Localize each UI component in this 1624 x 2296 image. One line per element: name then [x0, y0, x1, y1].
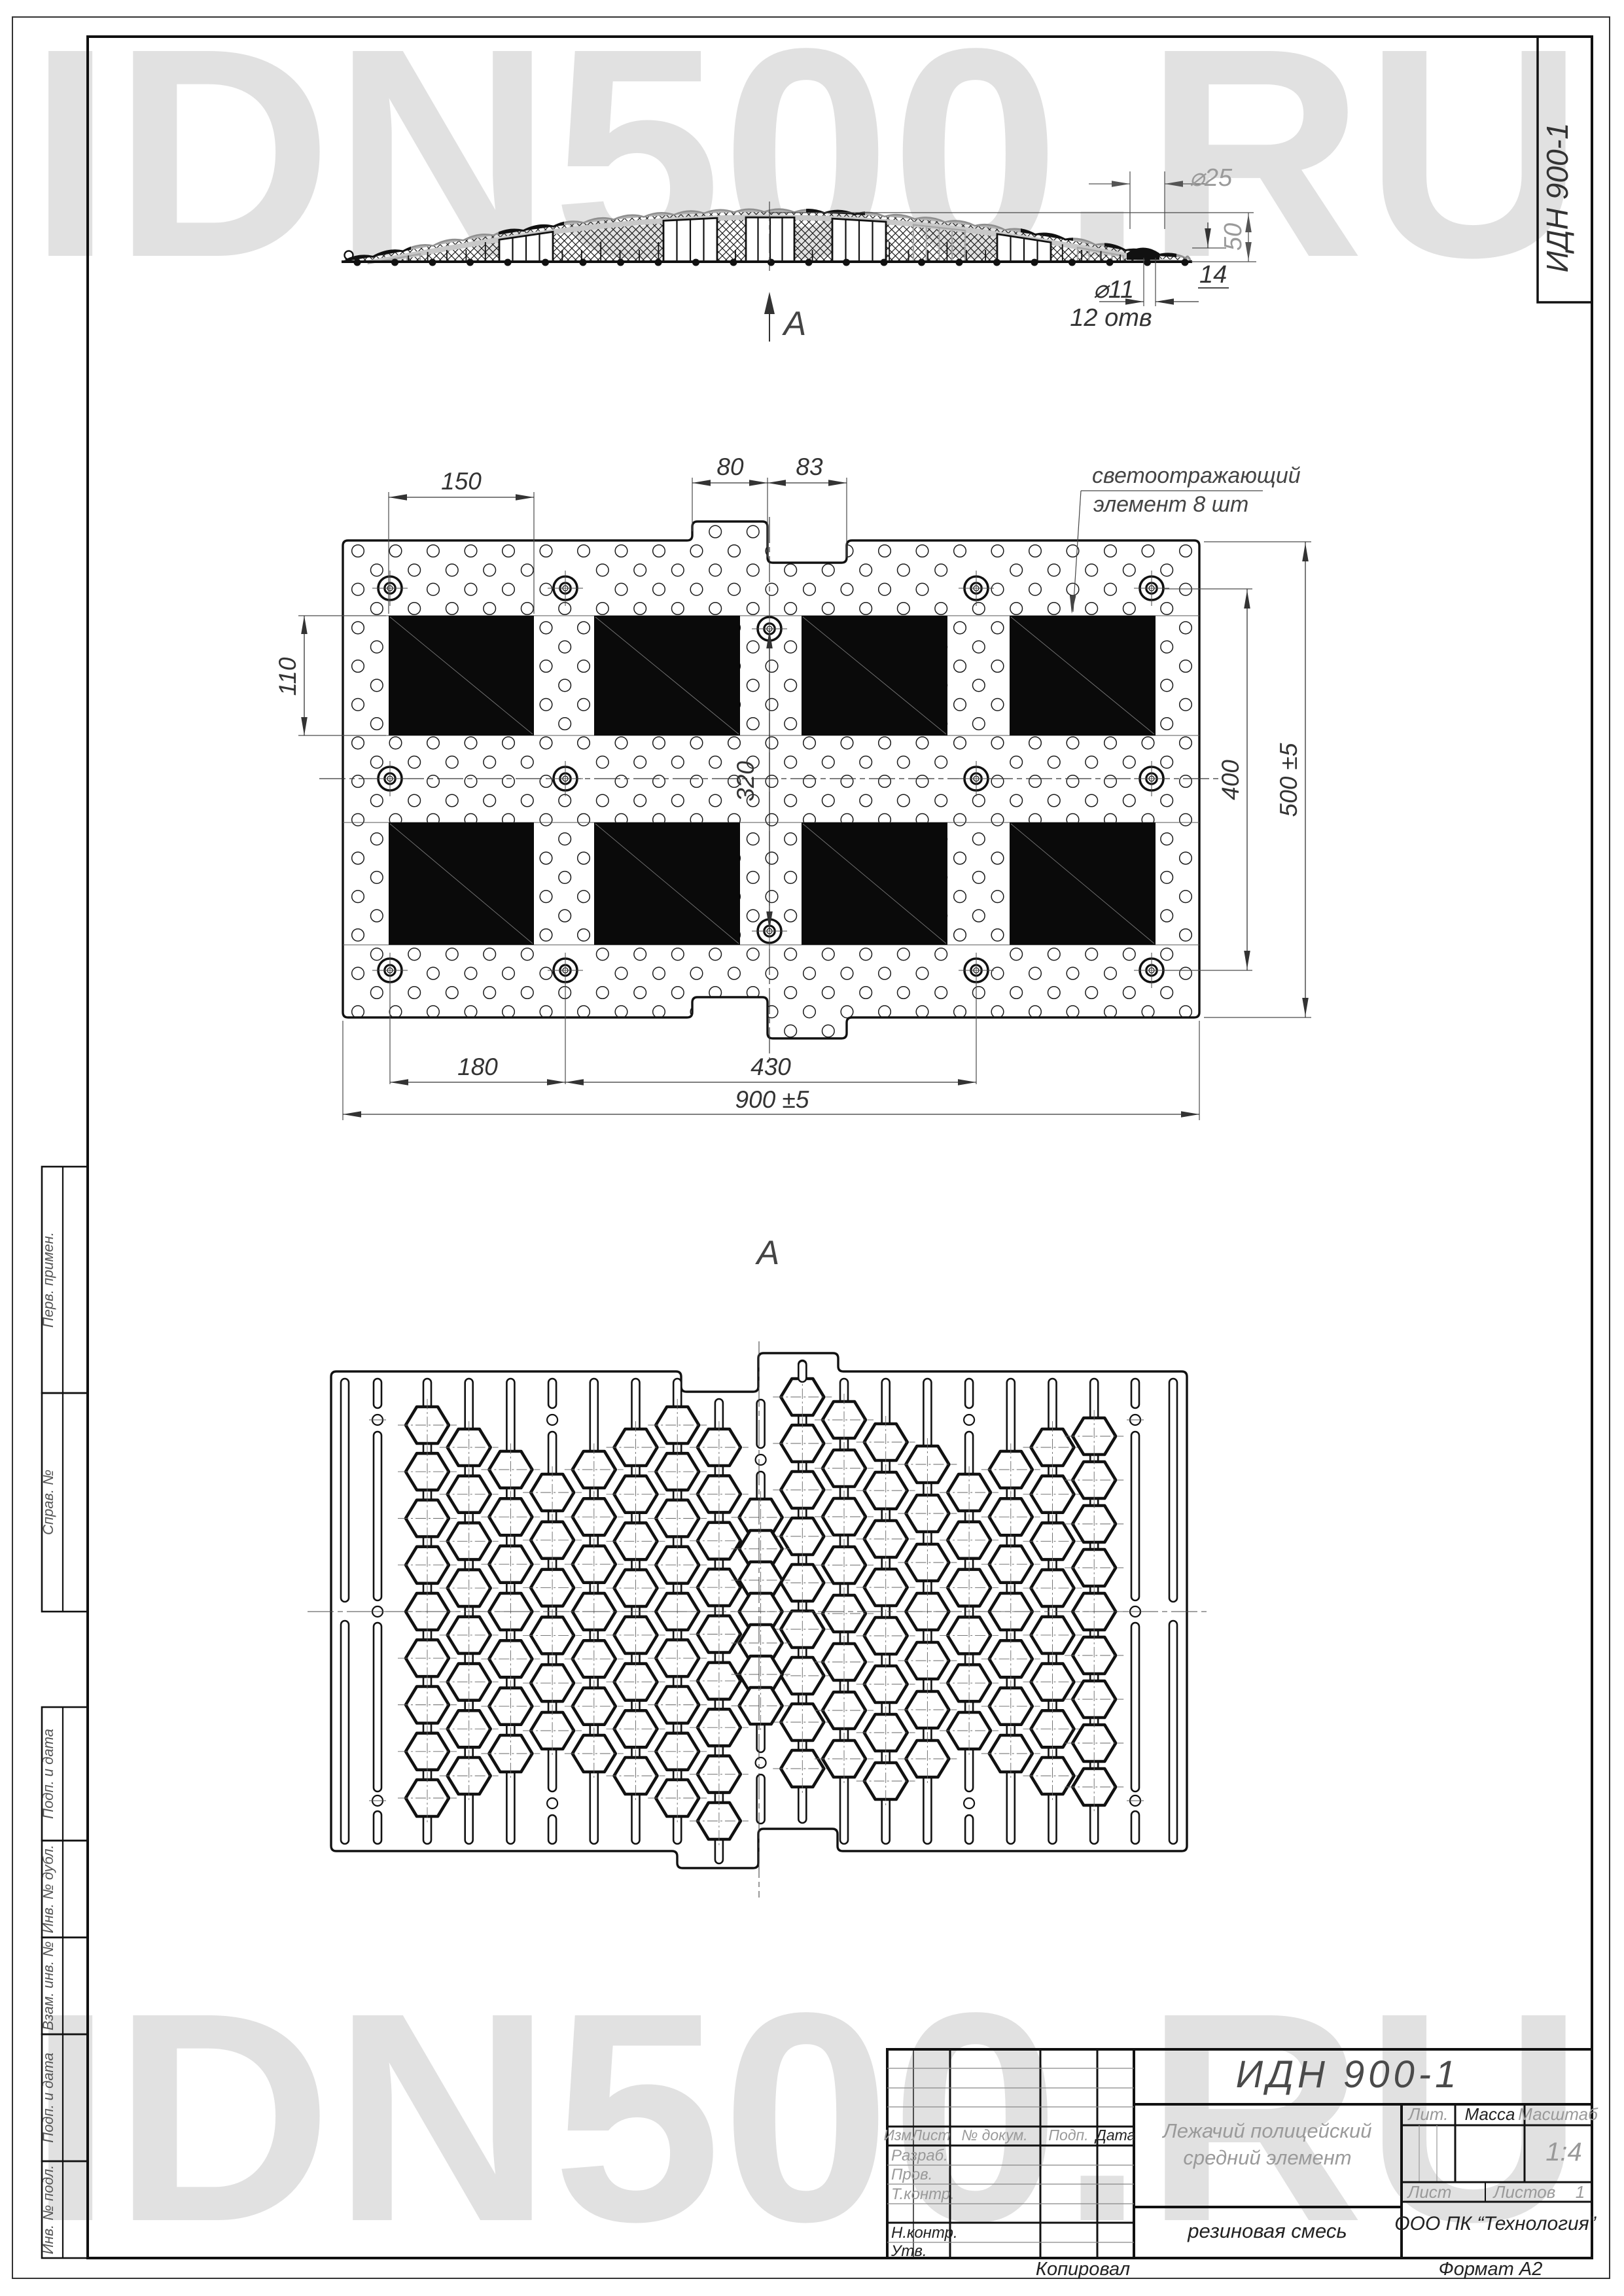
svg-text:110: 110	[274, 657, 301, 696]
svg-text:Инв. № дубл.: Инв. № дубл.	[40, 1845, 56, 1933]
svg-text:Инв. № подл.: Инв. № подл.	[40, 2165, 56, 2255]
svg-text:1:4: 1:4	[1545, 2138, 1582, 2166]
svg-text:Лит.: Лит.	[1407, 2104, 1449, 2124]
svg-text:Изм.: Изм.	[883, 2127, 915, 2144]
svg-text:Пров.: Пров.	[891, 2166, 932, 2183]
svg-text:светоотражающий: светоотражающий	[1092, 463, 1301, 488]
svg-text:180: 180	[457, 1053, 498, 1080]
svg-text:Подп. и дата: Подп. и дата	[40, 1729, 56, 1819]
svg-text:150: 150	[441, 468, 482, 495]
svg-text:Лежачий полицейский: Лежачий полицейский	[1162, 2119, 1372, 2142]
svg-text:А: А	[755, 1234, 780, 1272]
svg-text:Т.контр.: Т.контр.	[891, 2185, 955, 2203]
svg-text:Утв.: Утв.	[891, 2242, 927, 2260]
svg-text:Перв. примен.: Перв. примен.	[40, 1232, 56, 1328]
svg-text:500 ±5: 500 ±5	[1275, 743, 1302, 817]
svg-text:14: 14	[1199, 261, 1227, 289]
svg-text:⌀11: ⌀11	[1093, 276, 1134, 304]
svg-text:Справ. №: Справ. №	[40, 1470, 56, 1535]
svg-text:элемент 8 шт: элемент 8 шт	[1093, 492, 1248, 517]
svg-text:Н.контр.: Н.контр.	[891, 2224, 958, 2242]
svg-text:Формат А2: Формат А2	[1439, 2259, 1543, 2280]
svg-text:Лист: Лист	[1407, 2182, 1452, 2202]
svg-text:А: А	[782, 305, 807, 343]
svg-text:Масштаб: Масштаб	[1518, 2104, 1598, 2124]
svg-text:80: 80	[716, 453, 744, 480]
svg-text:Разраб.: Разраб.	[891, 2147, 948, 2164]
svg-text:1: 1	[1576, 2182, 1585, 2202]
svg-text:320: 320	[732, 761, 759, 802]
svg-text:⌀25: ⌀25	[1190, 164, 1233, 192]
svg-text:Лист: Лист	[910, 2127, 950, 2144]
svg-text:ООО ПК “Технология”: ООО ПК “Технология”	[1394, 2213, 1597, 2234]
svg-text:Подп. и дата: Подп. и дата	[40, 2053, 56, 2143]
svg-text:средний элемент: средний элемент	[1183, 2146, 1351, 2169]
svg-text:Масса: Масса	[1465, 2104, 1515, 2124]
svg-text:50: 50	[1220, 223, 1247, 251]
svg-text:430: 430	[750, 1053, 791, 1080]
svg-text:12 отв: 12 отв	[1070, 304, 1152, 332]
svg-text:резиновая смесь: резиновая смесь	[1187, 2219, 1347, 2242]
svg-text:900 ±5: 900 ±5	[735, 1086, 809, 1113]
svg-text:Листов: Листов	[1492, 2182, 1556, 2202]
svg-text:ИДН 900-1: ИДН 900-1	[1236, 2053, 1460, 2096]
svg-text:№ докум.: № докум.	[961, 2127, 1027, 2144]
svg-text:IDN500.RU: IDN500.RU	[28, 0, 1584, 319]
svg-text:Взам. инв. №: Взам. инв. №	[40, 1941, 56, 2030]
svg-text:IDN500.RU: IDN500.RU	[28, 1951, 1584, 2284]
svg-text:ИДН 900-1: ИДН 900-1	[1540, 123, 1574, 273]
svg-text:83: 83	[796, 453, 823, 480]
svg-text:Дата: Дата	[1094, 2127, 1136, 2144]
svg-text:400: 400	[1217, 760, 1244, 800]
svg-text:Подп.: Подп.	[1048, 2127, 1088, 2144]
svg-text:Копировал: Копировал	[1036, 2259, 1130, 2280]
